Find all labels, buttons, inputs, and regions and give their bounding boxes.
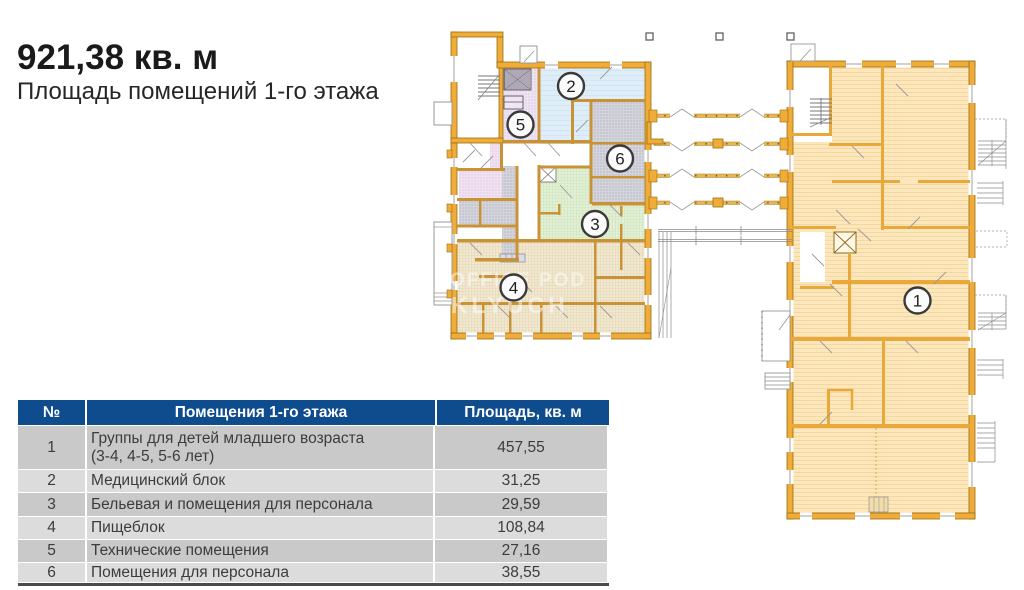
svg-text:1: 1: [913, 292, 922, 311]
svg-text:3: 3: [590, 215, 599, 234]
svg-text:5: 5: [516, 116, 525, 135]
svg-text:6: 6: [615, 150, 624, 169]
svg-text:4: 4: [509, 279, 518, 298]
svg-text:2: 2: [566, 77, 575, 96]
